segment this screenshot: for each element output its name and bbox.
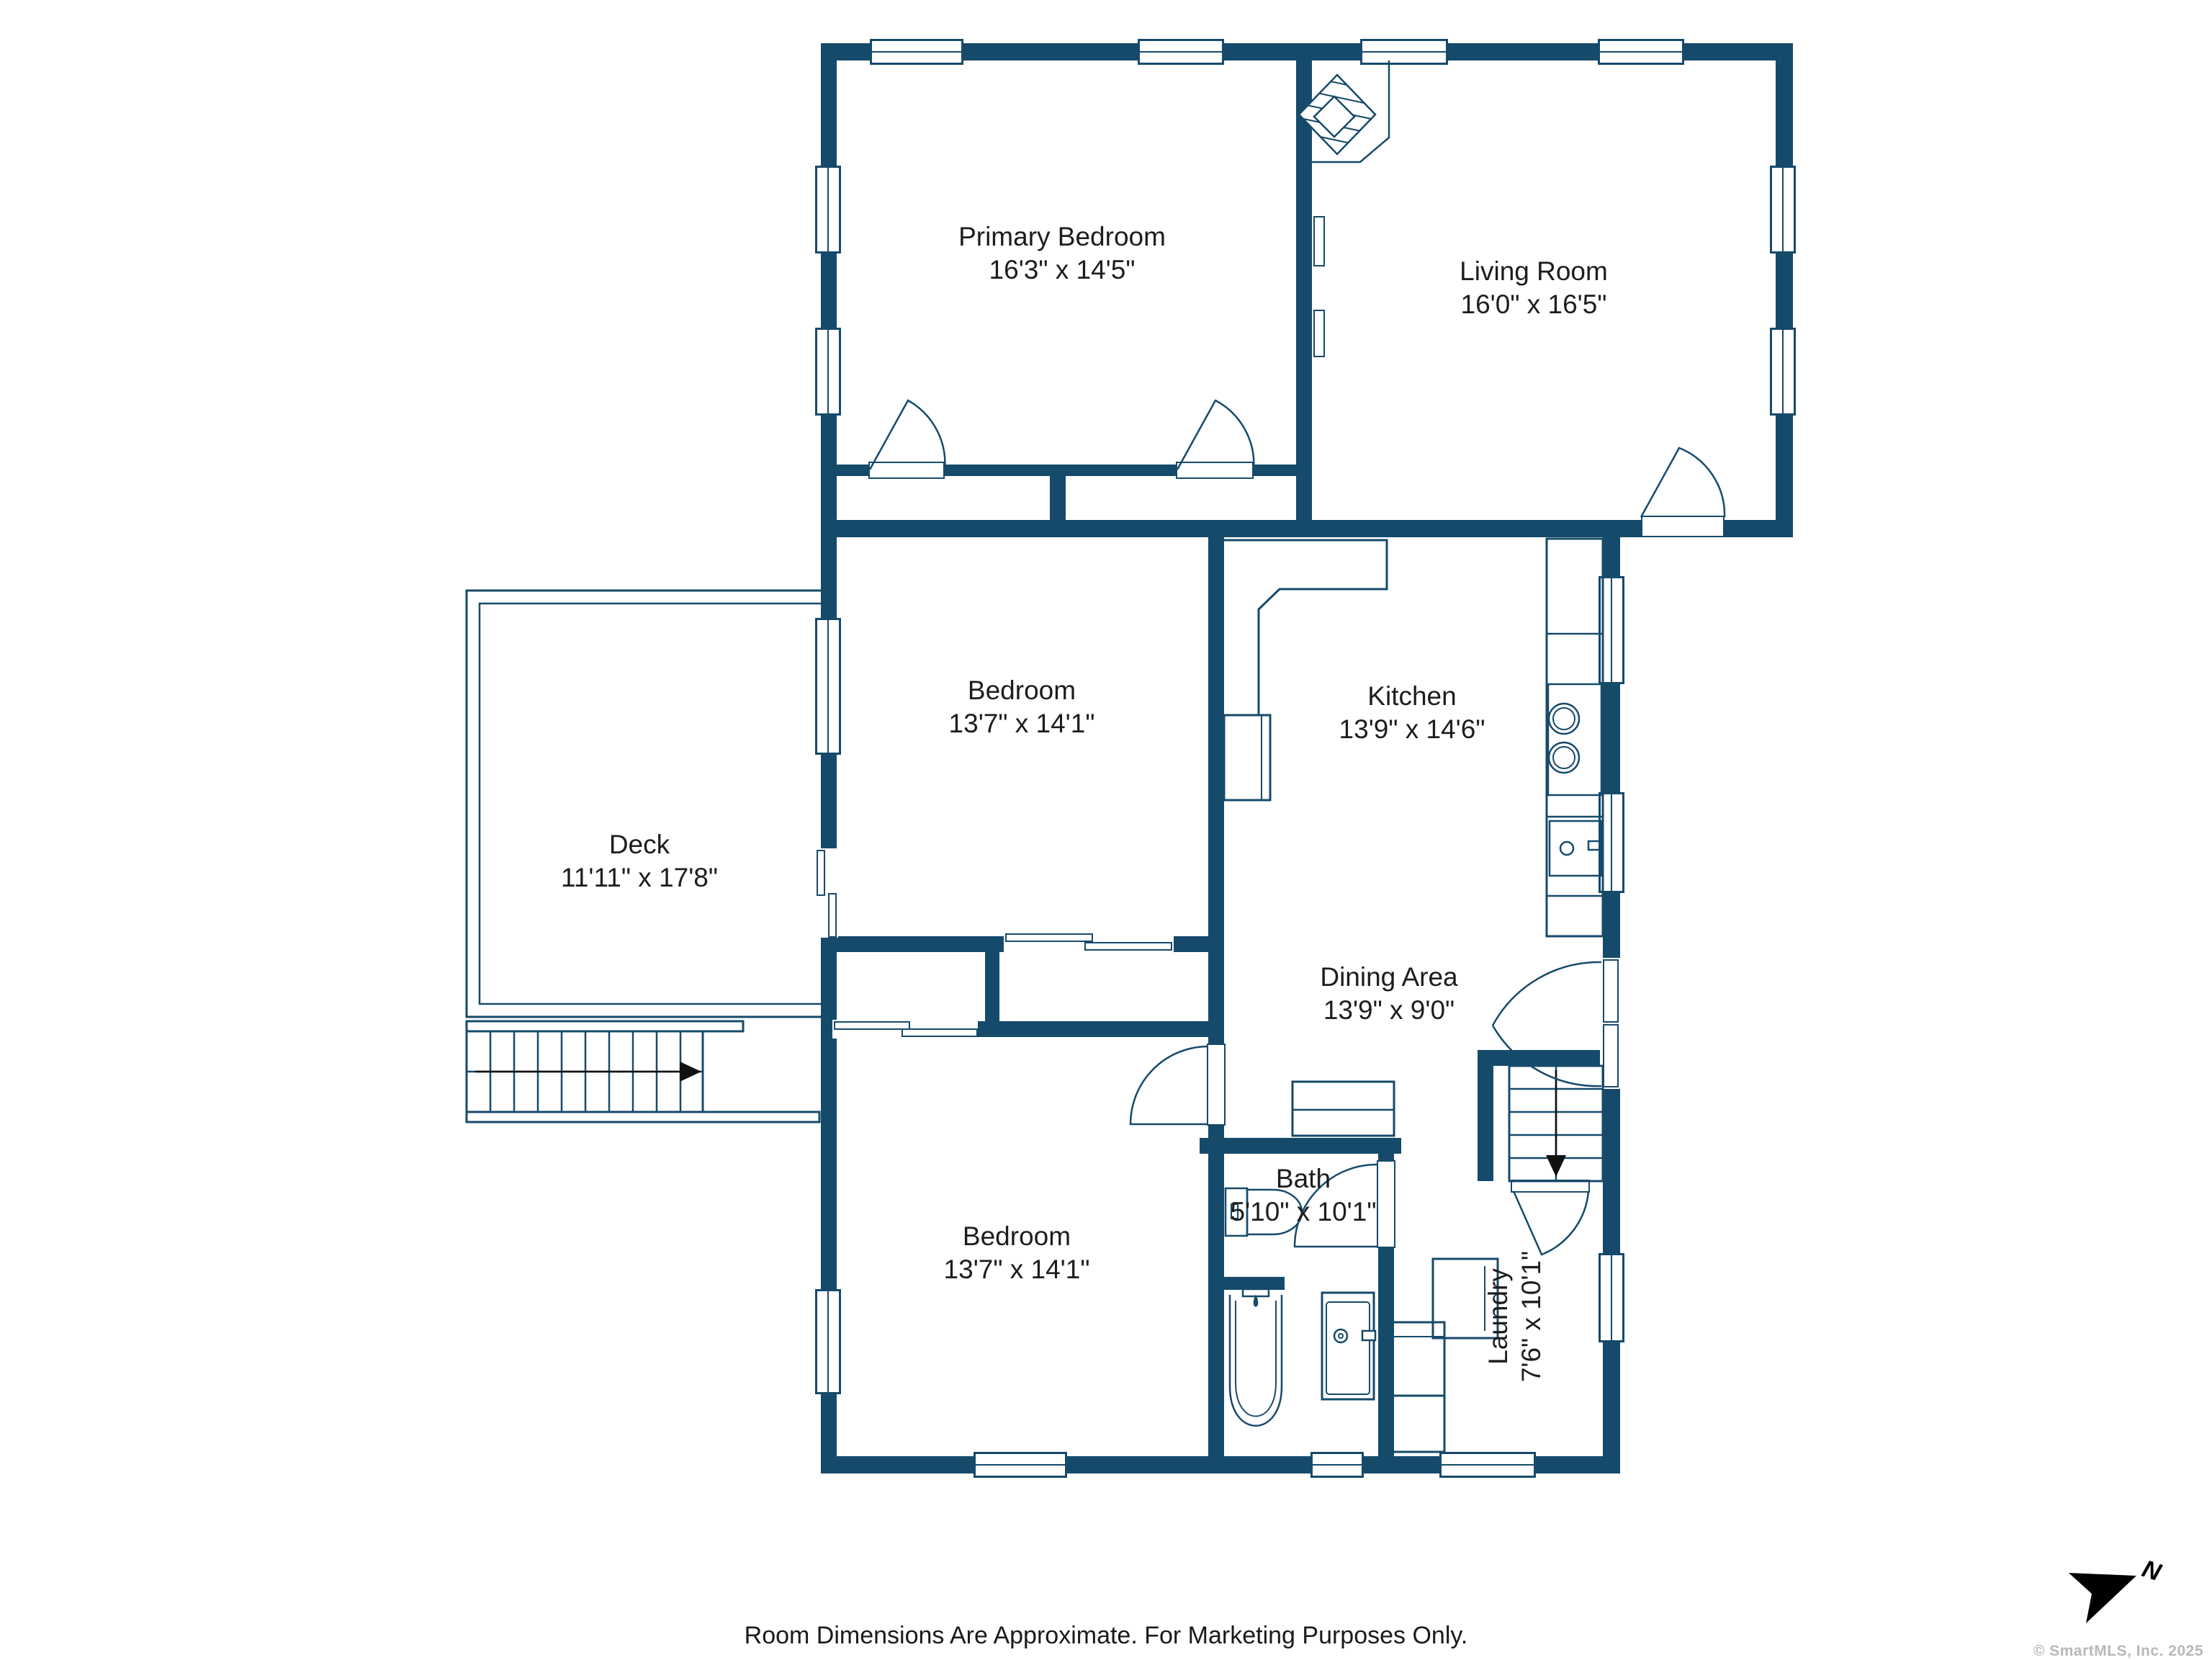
room-label-living-room: Living Room 16'0" x 16'5" (1460, 255, 1608, 321)
wall-closet-divider-upper (1050, 465, 1066, 537)
wall-exterior-left (821, 43, 837, 1473)
window (1138, 39, 1224, 65)
window (1360, 39, 1448, 65)
room-label-deck: Deck 11'11" x 17'8" (561, 828, 718, 894)
wall-stairs-left (1478, 1050, 1493, 1181)
room-dims: 7'6" x 10'1" (1515, 1251, 1548, 1382)
room-label-primary-bedroom: Primary Bedroom 16'3" x 14'5" (958, 220, 1166, 287)
room-label-laundry: Laundry 7'6" x 10'1" (1482, 1251, 1548, 1382)
slider-panel (828, 893, 837, 938)
door-swing-living (1641, 448, 1725, 517)
interior-stairs (1509, 1066, 1603, 1181)
door-leaf-bath (1377, 1160, 1395, 1248)
window (1770, 328, 1796, 416)
copyright-text: © SmartMLS, Inc. 2025 (2033, 1643, 2203, 1660)
window (1599, 576, 1624, 684)
room-name: Living Room (1460, 255, 1608, 288)
room-name: Kitchen (1339, 680, 1485, 713)
door-swing-primary-right (1177, 400, 1254, 470)
wall-bath-top (1200, 1138, 1401, 1154)
door-swing-bedroom-bottom (1130, 1046, 1208, 1124)
wall-bedroom-right (1208, 537, 1224, 1456)
window (974, 1452, 1067, 1478)
door-leaf-bedroom-bottom (1207, 1044, 1226, 1126)
pocket-panel (1313, 216, 1325, 266)
room-dims: 5'10" x 10'1" (1231, 1195, 1377, 1229)
kitchen-counter-left (1224, 540, 1387, 800)
door-leaf-dining-top (1603, 959, 1619, 1023)
compass-north-icon: N (2069, 1555, 2165, 1623)
window (815, 618, 841, 755)
window (815, 328, 841, 416)
fridge-icon (1224, 715, 1270, 800)
window (1599, 792, 1624, 893)
door-sill-primary-right (1176, 462, 1254, 479)
dining-buffet-icon (1292, 1082, 1394, 1136)
compass-letter: N (2139, 1555, 2164, 1587)
room-dims: 16'0" x 16'5" (1460, 288, 1608, 321)
wall-stairs-top (1478, 1050, 1616, 1066)
window (1439, 1452, 1536, 1478)
room-dims: 13'9" x 14'6" (1339, 713, 1485, 746)
laundry-appliances (1387, 1259, 1498, 1452)
door-swing-primary-left (870, 400, 945, 470)
wall-exterior-right-upper (1776, 43, 1793, 537)
wall-bath-half (1224, 1277, 1285, 1290)
washer-icon (1387, 1322, 1444, 1396)
kitchen-sink-icon (1550, 821, 1601, 876)
vanity-sink-icon (1322, 1293, 1375, 1399)
room-name: Primary Bedroom (958, 220, 1166, 254)
room-dims: 11'11" x 17'8" (561, 861, 718, 894)
door-sill-primary-left (868, 462, 945, 479)
door-swing-dining-double (1493, 962, 1601, 1086)
door-leaf-dining-bottom (1603, 1024, 1619, 1087)
room-dims: 13'7" x 14'1" (944, 1253, 1090, 1286)
room-name: Dining Area (1320, 961, 1457, 994)
door-swing-laundry (1514, 1191, 1588, 1255)
room-label-bedroom-middle: Bedroom 13'7" x 14'1" (949, 674, 1095, 740)
dryer-icon (1387, 1396, 1444, 1452)
stove-icon (1548, 684, 1601, 795)
window (1310, 1452, 1364, 1478)
window (1599, 1253, 1624, 1342)
deck-outline (467, 591, 821, 1017)
disclaimer-text: Room Dimensions Are Approximate. For Mar… (0, 1622, 2212, 1650)
room-name: Bath (1231, 1162, 1377, 1195)
room-name: Bedroom (949, 674, 1095, 707)
room-label-dining-area: Dining Area 13'9" x 9'0" (1320, 961, 1457, 1027)
window (870, 39, 963, 65)
wall-primary-living-divider (1296, 60, 1312, 537)
bathtub-icon (1230, 1289, 1282, 1426)
room-name: Deck (561, 828, 718, 861)
room-dims: 13'9" x 9'0" (1320, 994, 1457, 1027)
room-name: Laundry (1482, 1251, 1515, 1382)
room-dims: 16'3" x 14'5" (958, 254, 1166, 287)
window (1770, 166, 1796, 254)
slider-panel (834, 1021, 910, 1030)
deck-stairs-arrow (680, 1062, 701, 1082)
slider-panel (902, 1028, 978, 1037)
room-label-bath: Bath 5'10" x 10'1" (1231, 1162, 1377, 1229)
room-label-kitchen: Kitchen 13'9" x 14'6" (1339, 680, 1485, 746)
window (815, 166, 841, 254)
room-name: Bedroom (944, 1220, 1090, 1253)
door-sill-living (1641, 516, 1725, 537)
floor-plan: N Primary Bedroom 16'3" x 14'5" Living R… (0, 0, 2212, 1659)
pocket-panel (1313, 310, 1325, 357)
door-leaf-laundry (1511, 1180, 1590, 1193)
slider-panel (1005, 933, 1093, 942)
room-dims: 13'7" x 14'1" (949, 707, 1095, 740)
slider-panel (817, 850, 825, 896)
kitchen-counter-right (1547, 539, 1603, 936)
slider-panel (1084, 942, 1172, 951)
room-label-bedroom-bottom: Bedroom 13'7" x 14'1" (944, 1220, 1090, 1286)
window (815, 1289, 841, 1394)
stairs-down-arrow (1546, 1155, 1566, 1177)
window (1598, 39, 1684, 65)
deck-stairs (467, 1021, 819, 1122)
